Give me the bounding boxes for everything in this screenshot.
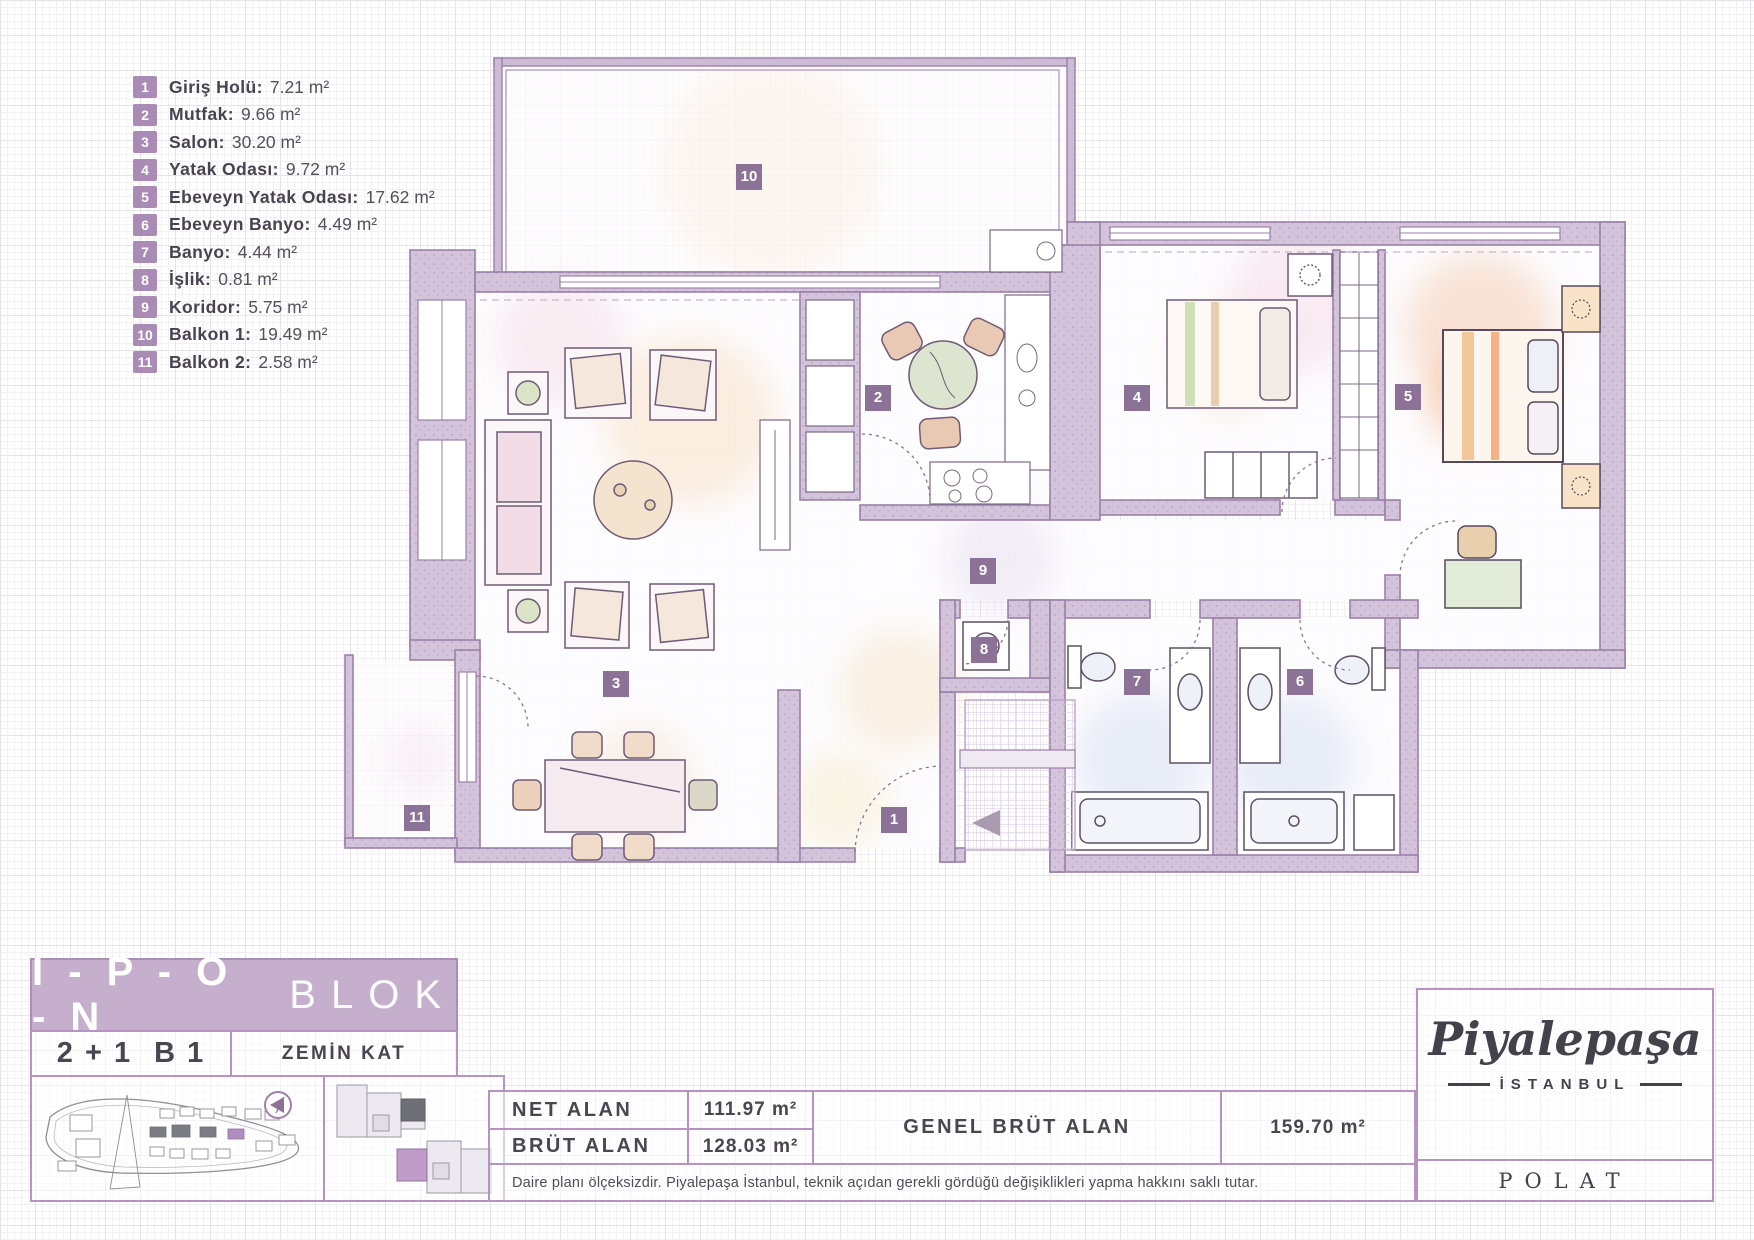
legend-number: 10: [133, 324, 157, 346]
room-legend: 1Giriş Holü:7.21 m² 2Mutfak:9.66 m² 3Sal…: [133, 76, 435, 374]
floor-name-cell: ZEMİN KAT: [230, 1030, 458, 1077]
disclaimer-cell: Daire planı ölçeksizdir. Piyalepaşa İsta…: [488, 1163, 1416, 1202]
net-alan-label-cell: NET ALAN: [488, 1090, 689, 1130]
room-badge-1: 1: [881, 807, 907, 833]
brut-alan-value: 128.03 m²: [703, 1136, 799, 1158]
room-badge-3: 3: [603, 671, 629, 697]
room-badge-9: 9: [970, 558, 996, 584]
legend-item: 9Koridor:5.75 m²: [133, 296, 435, 319]
legend-item: 1Giriş Holü:7.21 m²: [133, 76, 435, 99]
legend-item: 10Balkon 1:19.49 m²: [133, 324, 435, 347]
room-badge-10: 10: [736, 164, 762, 190]
room-badge-8: 8: [971, 637, 997, 663]
legend-number: 3: [133, 131, 157, 153]
disclaimer-text: Daire planı ölçeksizdir. Piyalepaşa İsta…: [512, 1175, 1258, 1191]
unit-type: 2 + 1: [57, 1037, 132, 1070]
key-plan-unit-highlighted: [397, 1149, 427, 1181]
brut-alan-label-cell: BRÜT ALAN: [488, 1128, 689, 1165]
legend-number: 8: [133, 269, 157, 291]
genel-brut-label: GENEL BRÜT ALAN: [903, 1116, 1131, 1139]
legend-item: 7Banyo:4.44 m²: [133, 241, 435, 264]
block-title-banner: I - P - O - N BLOK: [30, 958, 458, 1032]
brut-alan-value-cell: 128.03 m²: [687, 1128, 814, 1165]
legend-item: 8İşlik:0.81 m²: [133, 269, 435, 292]
brut-alan-label: BRÜT ALAN: [512, 1135, 650, 1158]
legend-number: 4: [133, 159, 157, 181]
brand-city: İSTANBUL: [1500, 1076, 1631, 1093]
brand-city-row: İSTANBUL: [1448, 1076, 1683, 1093]
legend-number: 2: [133, 104, 157, 126]
legend-number: 5: [133, 186, 157, 208]
legend-item: 4Yatak Odası:9.72 m²: [133, 159, 435, 182]
entrance-porch: [960, 700, 1075, 850]
block-key-plan-panel: [323, 1075, 505, 1202]
net-alan-label: NET ALAN: [512, 1099, 632, 1122]
legend-item: 11Balkon 2:2.58 m²: [133, 351, 435, 374]
block-suffix: BLOK: [289, 973, 456, 1018]
brand-logo: Piyalepaşa: [1428, 1016, 1701, 1062]
compass-icon: [265, 1092, 291, 1118]
legend-item: 3Salon:30.20 m²: [133, 131, 435, 154]
unit-code: B 1: [154, 1037, 205, 1070]
key-plan-unit-dark: [401, 1099, 425, 1121]
unit-type-cell: 2 + 1 B 1: [30, 1030, 232, 1077]
legend-item: 2Mutfak:9.66 m²: [133, 104, 435, 127]
room-badge-11: 11: [404, 805, 430, 831]
legend-number: 9: [133, 296, 157, 318]
legend-item: 5Ebeveyn Yatak Odası:17.62 m²: [133, 186, 435, 209]
room-badge-2: 2: [865, 385, 891, 411]
block-name: I - P - O - N: [32, 950, 267, 1040]
city-bar-left: [1448, 1083, 1490, 1086]
block-key-plan: [325, 1077, 503, 1200]
legend-item: 6Ebeveyn Banyo:4.49 m²: [133, 214, 435, 237]
room-badge-7: 7: [1124, 669, 1150, 695]
floor-plan-sheet: 1 2 3 4 5 6 7 8 9 10 11 1Giriş Holü:7.21…: [0, 0, 1754, 1240]
floor-name: ZEMİN KAT: [282, 1043, 407, 1065]
net-alan-value: 111.97 m²: [704, 1099, 798, 1121]
legend-number: 7: [133, 241, 157, 263]
city-bar-right: [1640, 1083, 1682, 1086]
net-alan-value-cell: 111.97 m²: [687, 1090, 814, 1130]
site-plan-panel: [30, 1075, 325, 1202]
room-badge-6: 6: [1287, 669, 1313, 695]
legend-number: 6: [133, 214, 157, 236]
legend-number: 11: [133, 351, 157, 373]
genel-brut-value: 159.70 m²: [1270, 1117, 1366, 1139]
site-plan-map: [32, 1077, 323, 1200]
brand-company: POLAT: [1418, 1159, 1712, 1200]
genel-brut-value-cell: 159.70 m²: [1220, 1090, 1416, 1165]
room-badge-5: 5: [1395, 384, 1421, 410]
legend-number: 1: [133, 76, 157, 98]
room-badge-4: 4: [1124, 385, 1150, 411]
brand-panel: Piyalepaşa İSTANBUL POLAT: [1416, 988, 1714, 1202]
genel-brut-label-cell: GENEL BRÜT ALAN: [812, 1090, 1222, 1165]
